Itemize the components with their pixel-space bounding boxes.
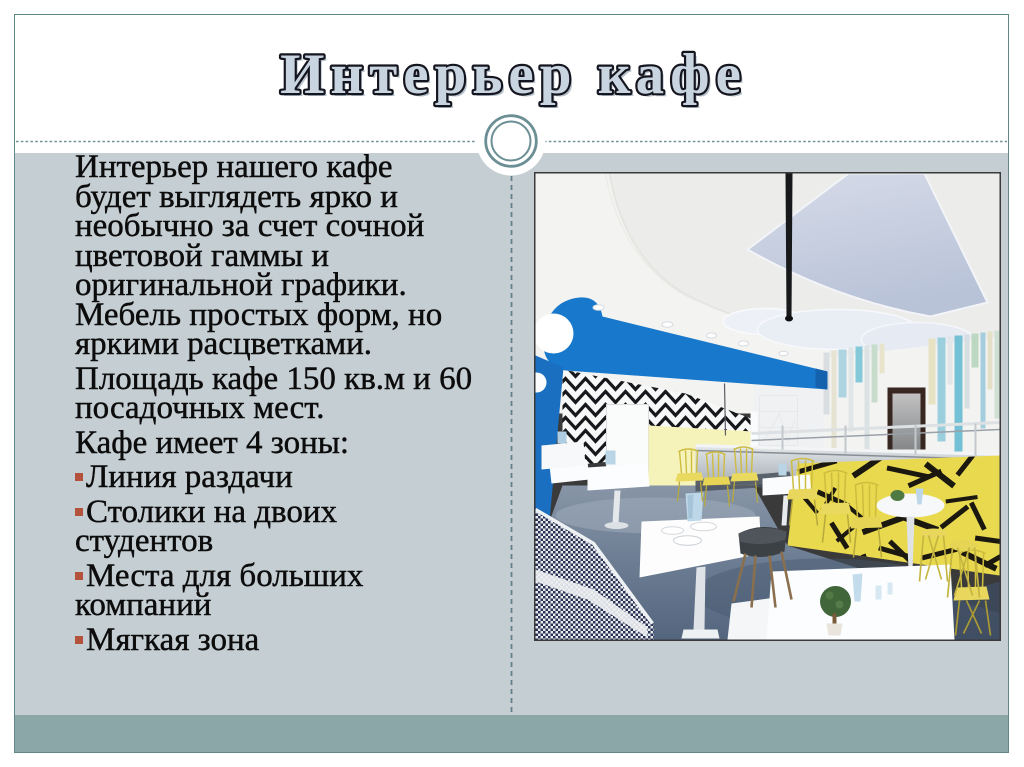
svg-text:Интерьер кафе: Интерьер кафе — [280, 43, 747, 106]
